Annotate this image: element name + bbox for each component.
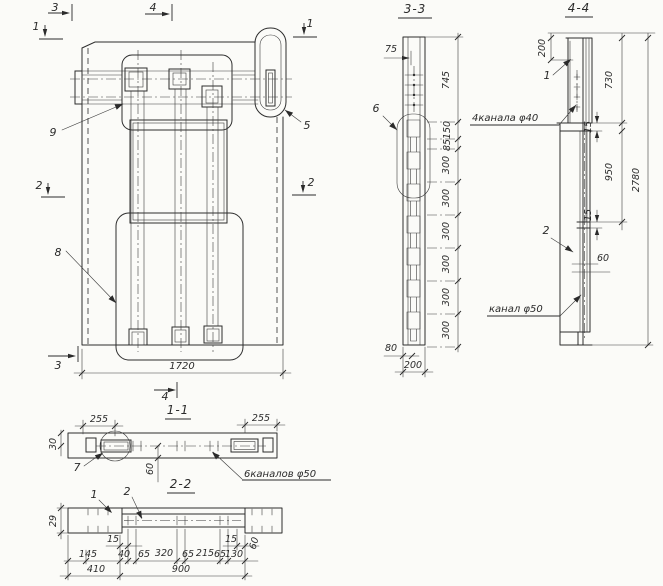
section-1-1-view: 1-1 255 255 30 60 7 6каналов φ5 (48, 403, 331, 482)
plan-loop-plate-bottom (116, 213, 243, 360)
dim-320: 320 (155, 548, 173, 559)
callout-1: 1 (544, 69, 551, 82)
section-2-2-view: 2-2 1 2 29 15 15 60 145 40 65 320 65 215… (48, 477, 282, 580)
dim-745: 745 (441, 71, 452, 89)
dim-60: 60 (145, 463, 156, 475)
dim-300-1: 300 (441, 156, 452, 174)
s33-channel-chain (407, 120, 420, 341)
s44-dims: 200 730 950 15 15 2780 60 (537, 33, 655, 348)
dim-75: 75 (384, 44, 411, 65)
s33-bottom-dims: 80 200 (384, 343, 433, 377)
plan-capsule-slot-inner (269, 73, 273, 103)
dim-65-a: 65 (138, 549, 150, 560)
dim-30: 30 (48, 438, 59, 450)
section-4-4-title: 4-4 (568, 1, 591, 15)
plan-corner-capsule (255, 28, 286, 117)
cut-marker-1-left: 1 (33, 20, 40, 33)
svg-text:7: 7 (74, 461, 81, 474)
dim-1720-label: 1720 (169, 361, 194, 372)
plan-tendon-lines (131, 89, 218, 329)
dim-950: 950 (604, 163, 615, 181)
s11-right-channel-slot-inner (234, 442, 255, 450)
dim-60-channel: 60 (597, 253, 609, 264)
cut-marker-4-top: 4 (150, 1, 157, 14)
plan-view: 1720 3 4 1 1 2 2 3 4 9 5 8 (33, 1, 318, 403)
s11-left-end-slot (86, 438, 96, 452)
dim-150: 150 (442, 121, 453, 139)
dim-300-5: 300 (441, 288, 452, 306)
plan-centerlines (70, 50, 292, 352)
callout-6: 6 (373, 102, 398, 130)
plan-loop-plate-top (122, 55, 232, 130)
drawing-sheet: 1720 3 4 1 1 2 2 3 4 9 5 8 3-3 (0, 0, 663, 586)
callout-5: 5 (304, 119, 311, 132)
callout-2-s22: 2 (124, 485, 131, 498)
dim-80: 80 (385, 343, 397, 354)
plan-opening-inner (133, 123, 224, 220)
dim-40: 40 (118, 549, 130, 560)
dim-15-bottom: 15 (583, 209, 594, 221)
dim-85: 85 (442, 139, 453, 151)
s11-right-end-slot (263, 438, 273, 452)
dim-65-b: 65 (182, 549, 194, 560)
cut-marker-1-right: 1 (307, 17, 314, 30)
callout-9: 9 (50, 126, 57, 139)
section-1-1-title: 1-1 (167, 403, 190, 417)
cut-marker-2-right: 2 (308, 176, 315, 189)
dim-300-2: 300 (441, 189, 452, 207)
s11-right-channel-slot (231, 439, 258, 452)
s33-dim-column: 745 150 85 300 300 300 300 300 300 (425, 33, 463, 352)
cut-marker-2-left: 2 (36, 179, 43, 192)
dim-15-left: 15 (107, 534, 119, 545)
dim-255-left: 255 (90, 414, 108, 425)
plan-bottom-anchors (129, 326, 222, 345)
s11-label-channels: 6каналов φ50 (212, 452, 331, 480)
plan-capsule-slot (266, 70, 275, 106)
section-4-4-view: 4-4 200 730 950 15 15 2780 60 1 2 (470, 1, 655, 348)
label-channel-50: канал φ50 (489, 304, 543, 315)
label-6-channels-50: 6каналов φ50 (244, 469, 316, 480)
cut-marker-3-bottom: 3 (55, 359, 62, 372)
dim-2780: 2780 (631, 168, 642, 192)
dim-200-width: 200 (404, 360, 422, 371)
svg-text:75: 75 (385, 44, 397, 55)
dim-145: 145 (79, 549, 97, 560)
s33-bar-inner-walls (408, 37, 420, 345)
technical-drawing: 1720 3 4 1 1 2 2 3 4 9 5 8 3-3 (0, 0, 663, 586)
s44-labels: 4канала φ40 канал φ50 (470, 105, 581, 316)
dim-300-6: 300 (441, 321, 452, 339)
svg-text:6: 6 (373, 102, 380, 115)
section-2-2-title: 2-2 (170, 477, 193, 491)
dim-200-top: 200 (537, 39, 548, 57)
s22-dims: 29 15 15 60 145 40 65 320 65 215 65 130 … (48, 503, 261, 580)
s33-bar-outline (403, 37, 425, 345)
s11-callout-7: 7 (74, 453, 104, 474)
cut-marker-4-bottom: 4 (162, 390, 169, 403)
plan-anchor-squares (125, 68, 222, 107)
s44-panel-thin-walls (570, 38, 589, 332)
plan-outline (75, 42, 283, 345)
dim-60-web: 60 (248, 536, 262, 551)
section-3-3-view: 3-3 75 6 745 150 8 (373, 2, 464, 377)
callout-2: 2 (543, 224, 550, 237)
dim-730: 730 (604, 71, 615, 89)
dim-15-top: 15 (583, 121, 594, 133)
callout-8: 8 (55, 246, 62, 259)
dim-900: 900 (172, 564, 190, 575)
dim-300-3: 300 (441, 222, 452, 240)
dim-15-right: 15 (225, 534, 237, 545)
plan-corner-capsule-inner (260, 35, 281, 110)
plan-callouts: 9 5 8 (50, 104, 311, 303)
dim-overall-width: 1720 (74, 349, 291, 379)
cut-marker-3-top: 3 (52, 1, 59, 14)
dim-410: 410 (87, 564, 105, 575)
dim-255-right: 255 (252, 413, 270, 424)
s44-60-lines (572, 264, 610, 272)
section-3-3-title: 3-3 (404, 2, 427, 16)
label-4-channels-40: 4канала φ40 (472, 113, 538, 124)
dim-215: 215 (196, 548, 214, 559)
plan-opening-outer (130, 120, 227, 223)
callout-1-s22: 1 (91, 488, 98, 501)
dim-300-4: 300 (441, 255, 452, 273)
dim-130: 130 (225, 549, 243, 560)
dim-29: 29 (48, 515, 59, 527)
